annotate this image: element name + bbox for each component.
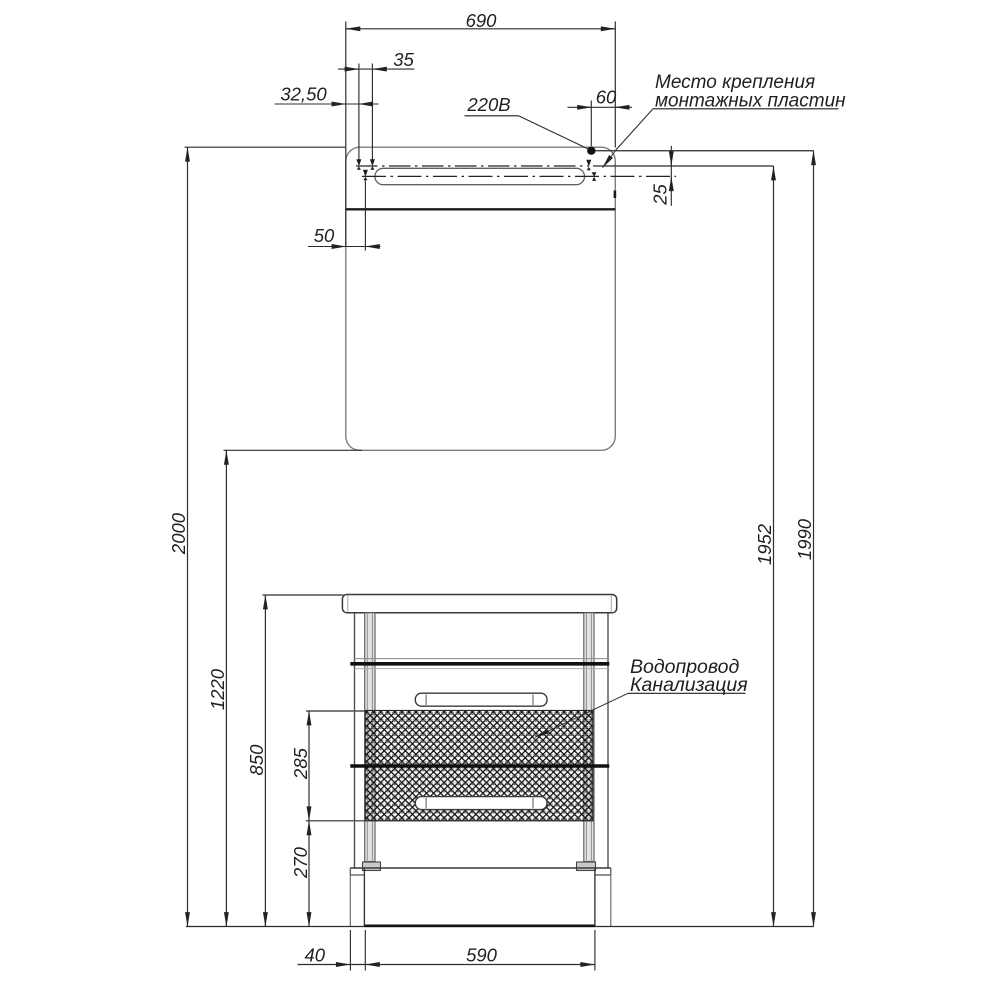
svg-text:1952: 1952 — [754, 523, 775, 565]
svg-text:32,50: 32,50 — [280, 84, 327, 105]
svg-text:Канализация: Канализация — [630, 674, 748, 696]
svg-text:25: 25 — [650, 184, 671, 206]
svg-text:1220: 1220 — [207, 668, 228, 710]
svg-text:40: 40 — [305, 945, 326, 966]
svg-text:850: 850 — [246, 744, 267, 776]
svg-text:285: 285 — [290, 747, 311, 780]
svg-text:270: 270 — [290, 846, 311, 879]
svg-text:2000: 2000 — [168, 512, 189, 555]
svg-text:690: 690 — [466, 10, 498, 31]
svg-text:50: 50 — [314, 225, 335, 246]
svg-text:35: 35 — [393, 49, 414, 70]
svg-text:220В: 220В — [466, 94, 510, 115]
svg-text:1990: 1990 — [794, 518, 815, 560]
svg-text:60: 60 — [596, 87, 617, 108]
svg-text:590: 590 — [466, 945, 498, 966]
